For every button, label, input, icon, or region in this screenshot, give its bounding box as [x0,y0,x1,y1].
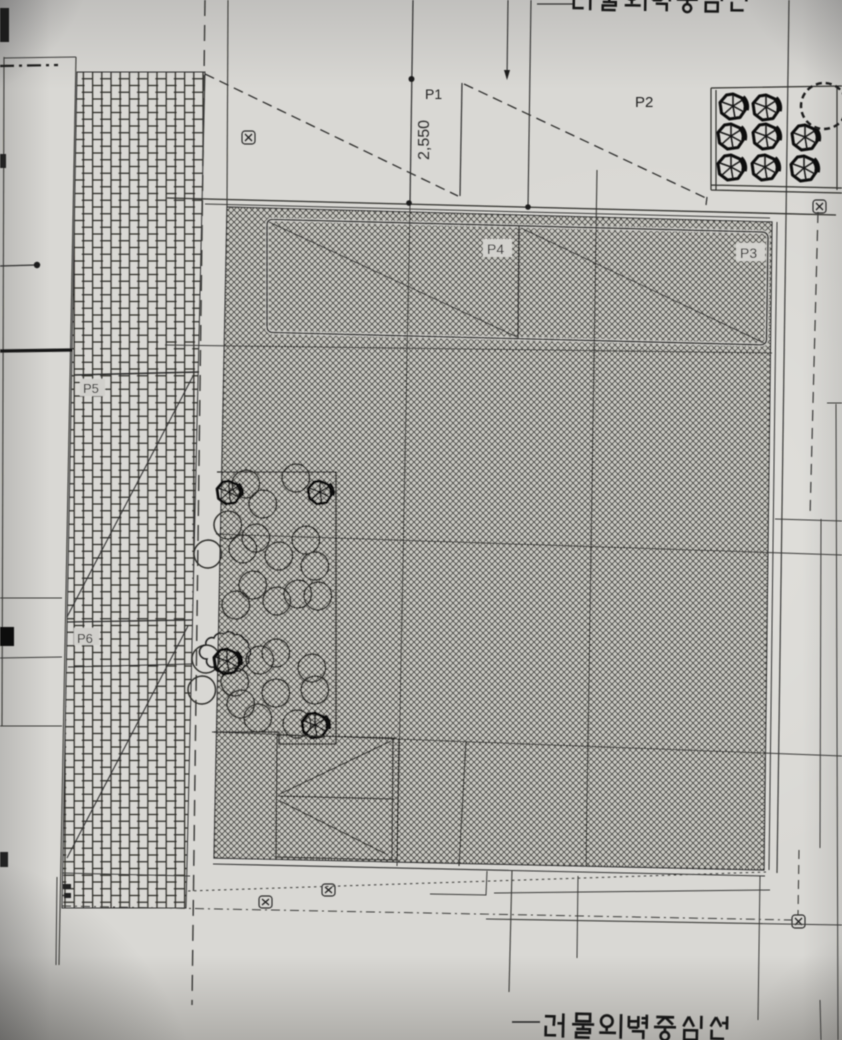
svg-text:P6: P6 [77,631,93,646]
svg-text:2,550: 2,550 [416,120,433,160]
svg-text:P5: P5 [83,381,99,396]
svg-text:P3: P3 [740,245,757,261]
svg-text:P2: P2 [635,94,653,111]
svg-text:P1: P1 [425,86,442,102]
svg-text:P4: P4 [487,241,504,257]
